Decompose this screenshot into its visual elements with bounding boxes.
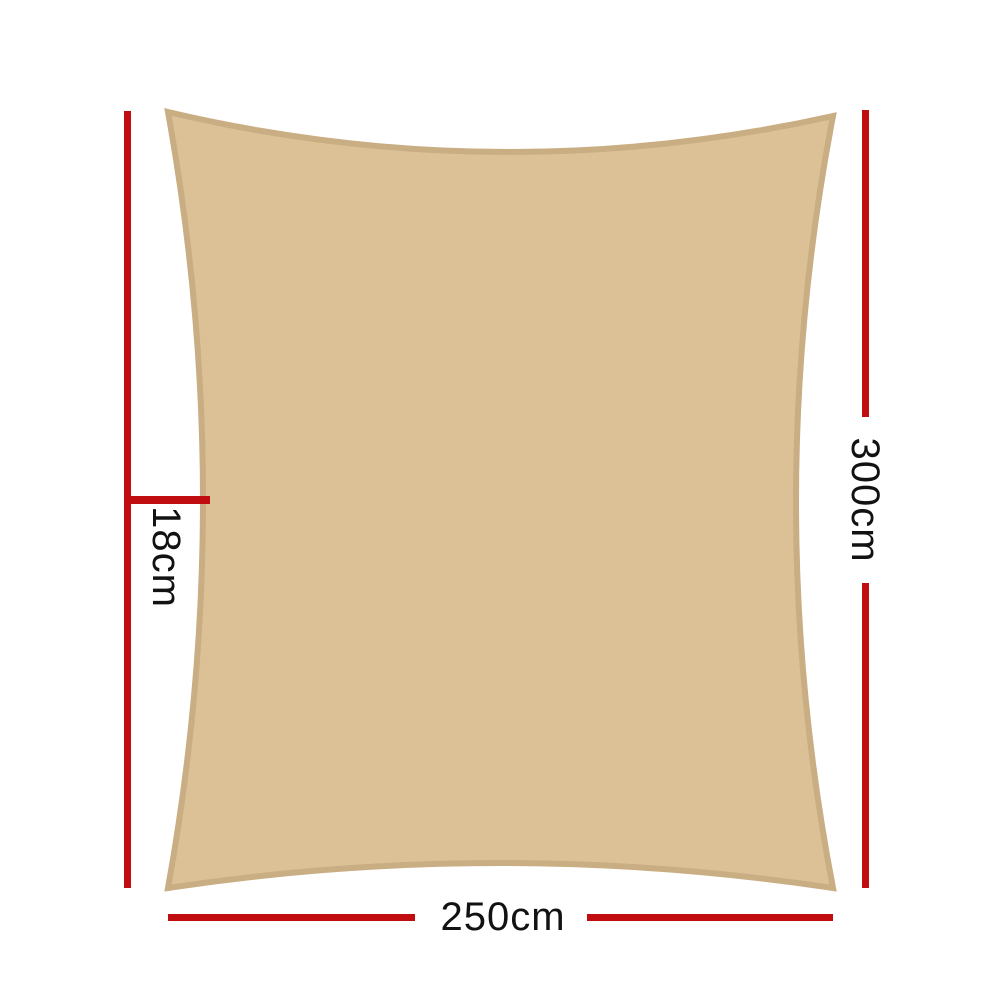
right-dimension-line-lower bbox=[862, 583, 869, 888]
right-dimension-label: 300cm bbox=[845, 437, 885, 562]
left-dimension-label: 18cm bbox=[146, 506, 186, 608]
right-dimension-line-upper bbox=[862, 110, 869, 417]
bottom-dimension-label: 250cm bbox=[440, 897, 565, 937]
bottom-dimension-line-right bbox=[587, 914, 833, 921]
shade-sail-fabric bbox=[168, 112, 833, 888]
bottom-dimension-line-left bbox=[168, 914, 415, 921]
product-dimension-diagram: 18cm 300cm 250cm bbox=[0, 0, 1000, 1000]
left-dimension-tick bbox=[124, 496, 210, 504]
